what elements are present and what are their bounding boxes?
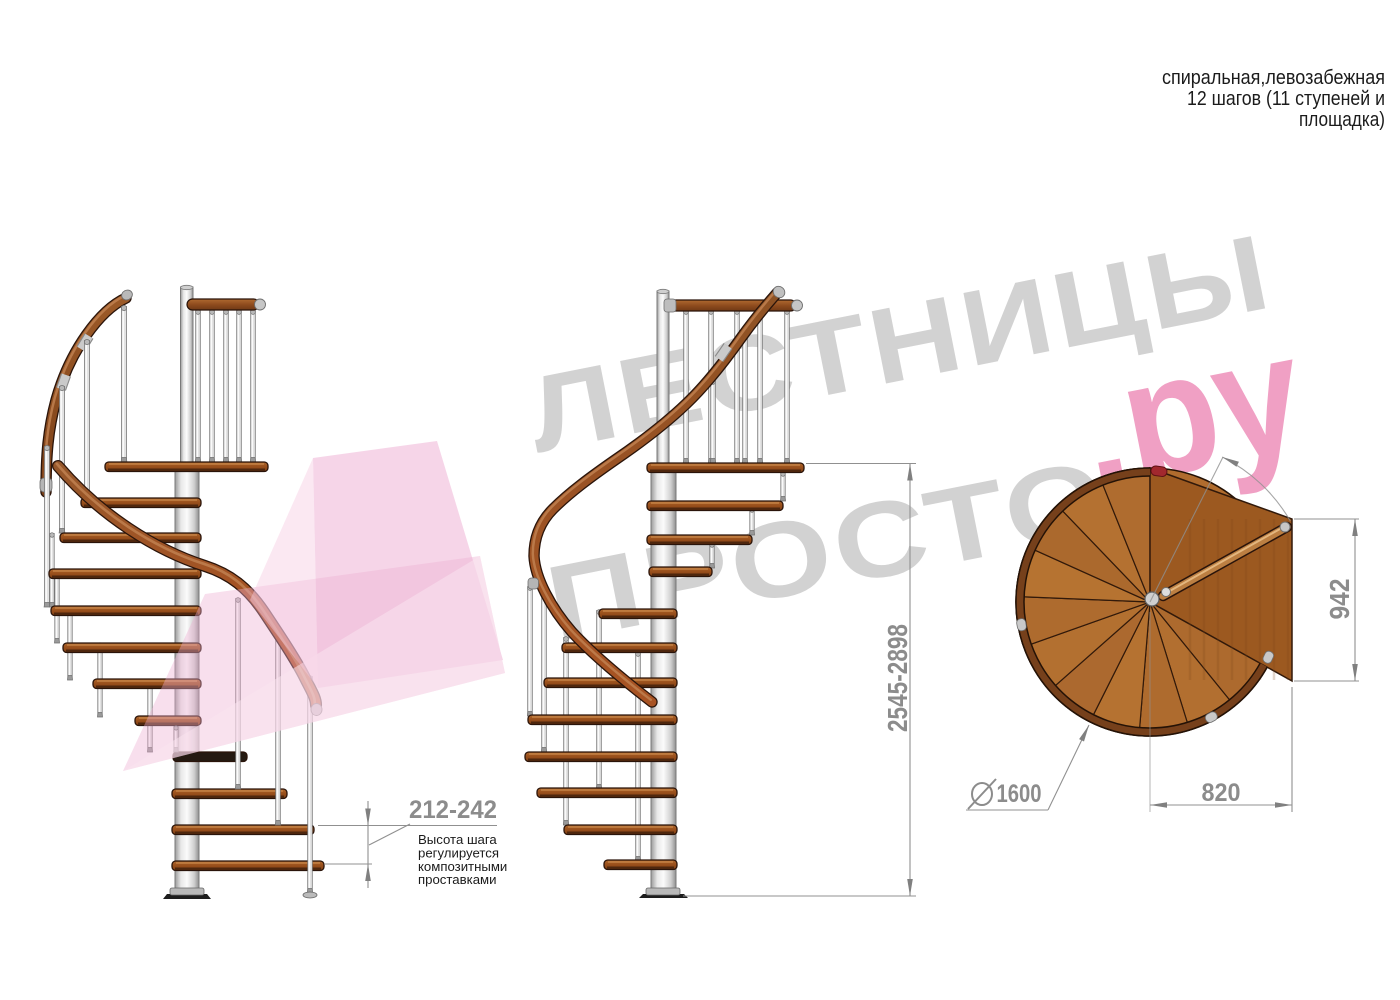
svg-text:820: 820 xyxy=(1202,779,1241,807)
svg-text:942: 942 xyxy=(1324,579,1355,620)
svg-text:площадка): площадка) xyxy=(1299,108,1385,131)
svg-text:2545-2898: 2545-2898 xyxy=(882,624,913,732)
svg-text:спиральная,левозабежная: спиральная,левозабежная xyxy=(1162,66,1385,89)
svg-text:12 шагов (11 ступеней и: 12 шагов (11 ступеней и xyxy=(1187,87,1385,110)
svg-text:проставками: проставками xyxy=(418,872,496,887)
svg-text:212-242: 212-242 xyxy=(409,796,497,824)
svg-text:1600: 1600 xyxy=(997,780,1042,808)
